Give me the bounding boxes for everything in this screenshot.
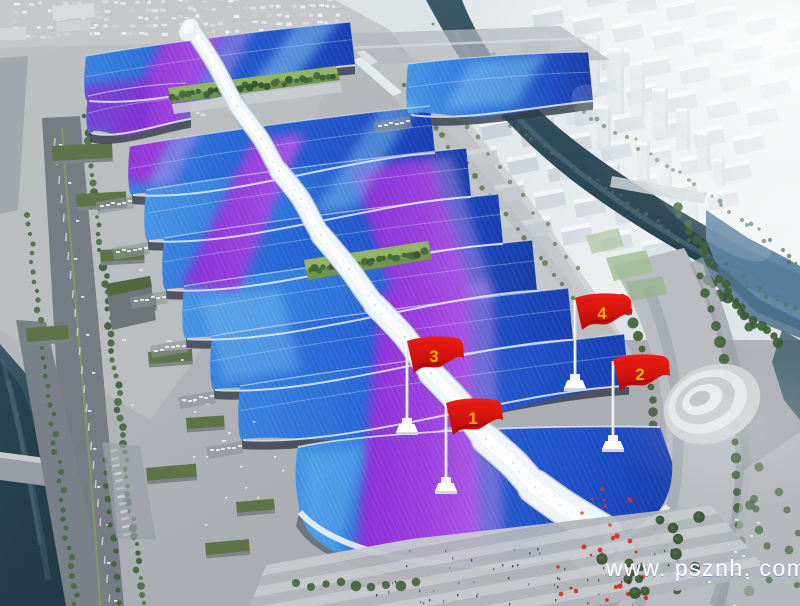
svg-text:3: 3 <box>429 348 438 366</box>
svg-text:1: 1 <box>468 410 477 428</box>
svg-text:4: 4 <box>597 305 607 323</box>
svg-text:www. psznh. com: www. psznh. com <box>605 555 800 581</box>
